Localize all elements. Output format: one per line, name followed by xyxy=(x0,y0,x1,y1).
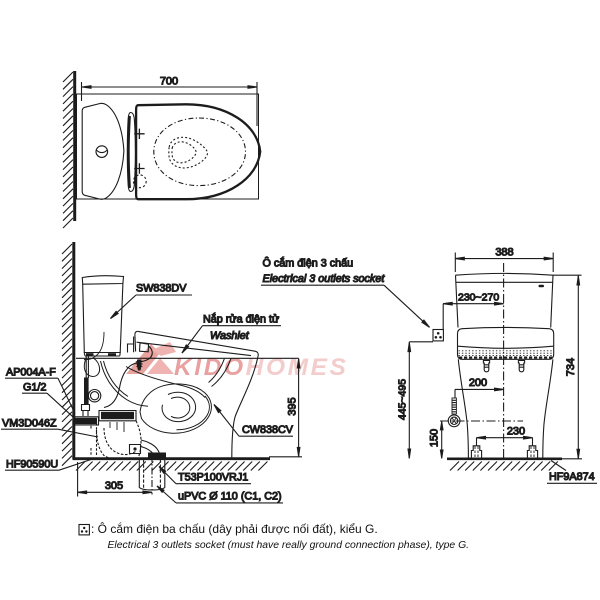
svg-text:388: 388 xyxy=(495,247,513,259)
svg-text:HF90590U: HF90590U xyxy=(6,459,58,471)
svg-text:Electrical 3 outlets socket: Electrical 3 outlets socket xyxy=(263,273,386,285)
svg-text:150: 150 xyxy=(429,429,441,447)
svg-text:T53P100VRJ1: T53P100VRJ1 xyxy=(178,472,248,484)
svg-text:200: 200 xyxy=(469,377,487,389)
svg-text:305: 305 xyxy=(105,480,123,492)
svg-text:700: 700 xyxy=(160,76,178,88)
svg-text:CW838CV: CW838CV xyxy=(242,424,294,436)
svg-text:VM3D046Z: VM3D046Z xyxy=(2,418,57,430)
svg-text:Electrical 3 outlets socket (m: Electrical 3 outlets socket (must have r… xyxy=(108,540,470,551)
svg-text:395: 395 xyxy=(287,397,299,415)
svg-text:SW838DV: SW838DV xyxy=(136,283,187,295)
svg-text:uPVC Ø 110 (C1, C2): uPVC Ø 110 (C1, C2) xyxy=(178,491,282,503)
svg-text:: Ô cắm điện ba chấu (dây phải: : Ô cắm điện ba chấu (dây phải được nối … xyxy=(91,521,378,536)
svg-text:Ô cắm điện 3 chấu: Ô cắm điện 3 chấu xyxy=(263,257,354,270)
svg-text:Nắp rửa điện tử: Nắp rửa điện tử xyxy=(203,313,279,326)
svg-text:734: 734 xyxy=(565,358,577,376)
svg-text:230~270: 230~270 xyxy=(458,292,499,304)
svg-text:G1/2: G1/2 xyxy=(23,382,46,394)
svg-text:AP004A-F: AP004A-F xyxy=(6,367,56,379)
svg-text:230: 230 xyxy=(507,426,525,438)
svg-text:HF9A874: HF9A874 xyxy=(549,471,595,483)
svg-text:445~495: 445~495 xyxy=(397,379,409,420)
svg-text:Washlet: Washlet xyxy=(210,330,250,342)
